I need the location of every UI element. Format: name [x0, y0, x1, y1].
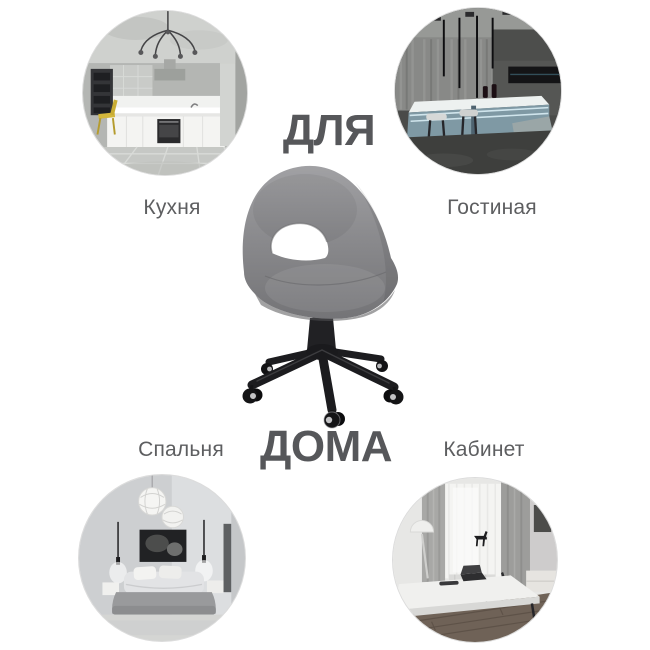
office-chair-photo	[205, 160, 435, 440]
casters	[243, 385, 404, 428]
chair-shell	[243, 166, 398, 321]
kitchen-photo	[82, 10, 248, 176]
five-star-base	[252, 344, 394, 410]
bedroom-label: Спальня	[138, 438, 224, 462]
living-room-scene	[395, 8, 561, 174]
office-label: Кабинет	[443, 438, 524, 462]
kitchen-label: Кухня	[143, 196, 200, 220]
office-chair-illustration	[205, 160, 435, 440]
bedroom-scene	[79, 475, 245, 641]
office-photo	[392, 477, 558, 643]
bedroom-photo	[78, 474, 246, 642]
title-top: ДЛЯ	[283, 109, 375, 153]
living-room-photo	[394, 7, 562, 175]
kitchen-scene	[83, 11, 247, 175]
living-room-label: Гостиная	[447, 196, 537, 220]
office-scene	[393, 478, 557, 642]
product-infographic: Кухня Гостиная Спальня Кабинет ДЛЯ ДОМА	[0, 0, 650, 650]
